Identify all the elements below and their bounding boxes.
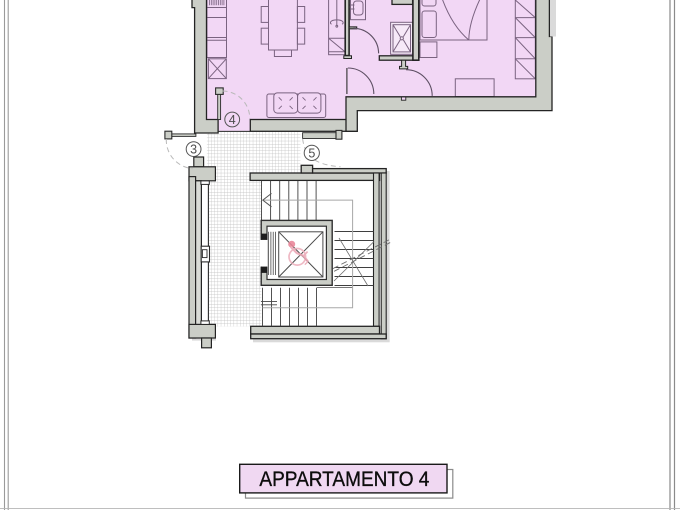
svg-text:4: 4: [229, 113, 236, 127]
svg-text:APPARTAMENTO 4: APPARTAMENTO 4: [259, 467, 429, 491]
svg-text:3: 3: [190, 143, 197, 157]
svg-text:5: 5: [308, 146, 315, 160]
